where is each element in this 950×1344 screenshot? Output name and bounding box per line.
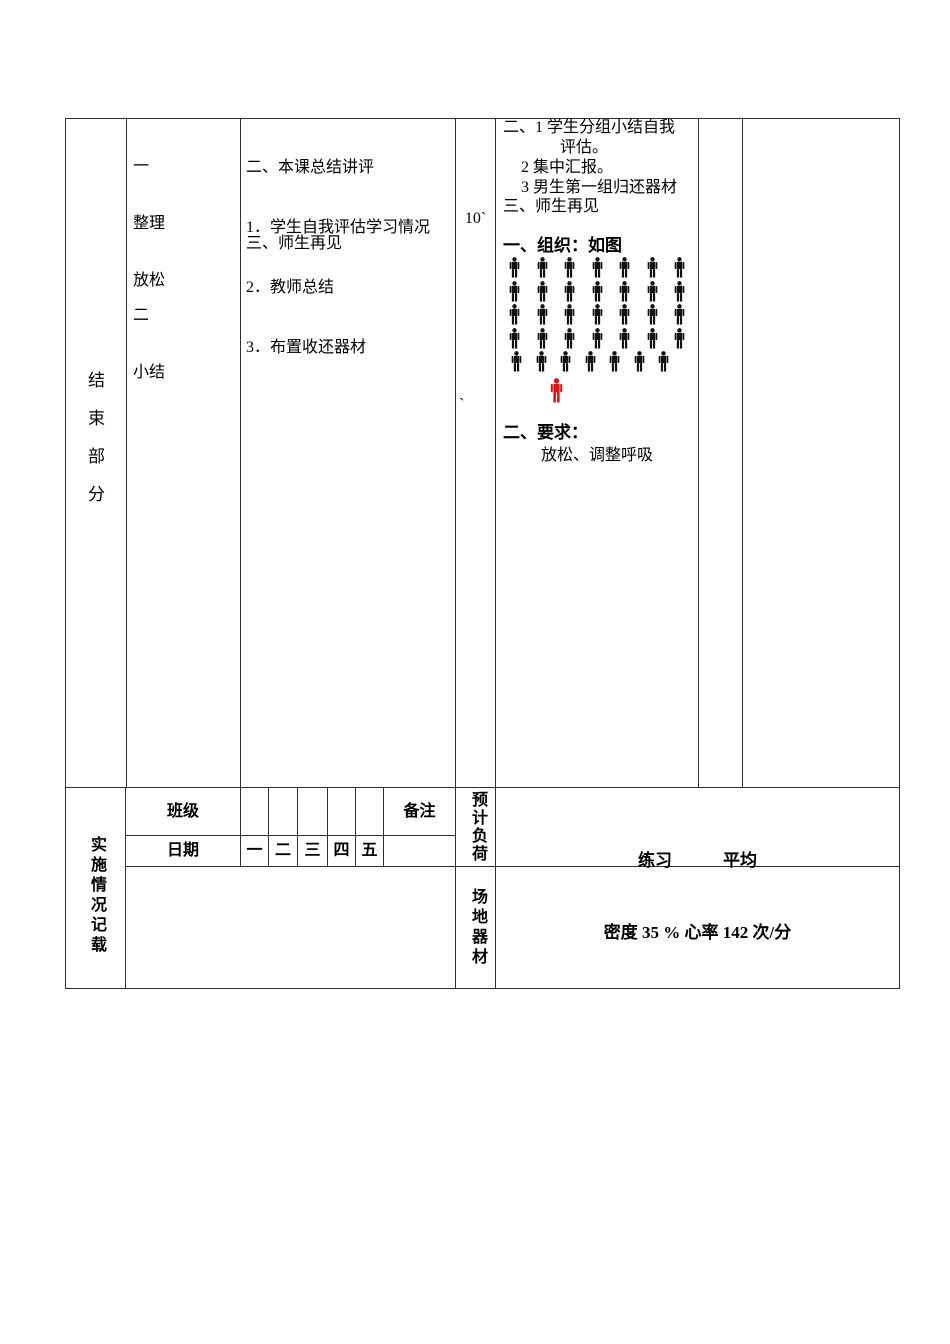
student-figure-icon — [509, 304, 520, 325]
weekday-label-mon: 一 — [240, 841, 269, 861]
student-figure-icon — [537, 281, 548, 302]
content-group1-num: 一 — [133, 157, 165, 176]
student-figure-icon — [509, 257, 520, 278]
student-figure-icon — [536, 351, 547, 372]
weekday-label-fri: 五 — [355, 841, 384, 861]
student-figure-icon — [674, 304, 685, 325]
student-figure-icon — [647, 281, 658, 302]
student-figure-icon — [647, 304, 658, 325]
teaching-line: 3．布置收还器材 — [246, 338, 430, 358]
teaching-dismissal-line: 三、师生再见 — [246, 234, 342, 254]
content-group2-line1: 小结 — [133, 363, 165, 382]
weekday-label-thu: 四 — [327, 841, 356, 861]
stray-tick-mark: ` — [459, 395, 464, 415]
student-figure-icon — [564, 304, 575, 325]
lesson-plan-page: 结束部分 一 整理 放松 二 小结 二、本课总结讲评 1．学生自我评估学习情况 … — [0, 0, 950, 1344]
student-figure-icon — [509, 281, 520, 302]
student-figure-icon — [609, 351, 620, 372]
student-figure-icon — [560, 351, 571, 372]
student-figure-icon — [511, 351, 522, 372]
student-figure-icon — [674, 257, 685, 278]
organization-heading: 一、组织：如图 — [503, 236, 622, 256]
student-figure-icon — [592, 304, 603, 325]
student-figure-icon — [592, 281, 603, 302]
class-blank-cell — [355, 787, 384, 836]
class-blank-cell — [240, 787, 269, 836]
load-label: 预计负荷 — [467, 791, 487, 863]
duration-value: 10` — [455, 209, 496, 229]
organization-line: 二、1 学生分组小结自我 — [503, 118, 675, 138]
organization-line: 2 集中汇报。 — [521, 158, 613, 178]
student-figure-icon — [619, 257, 630, 278]
class-blank-cell — [268, 787, 298, 836]
class-blank-cell — [297, 787, 328, 836]
student-figure-icon — [537, 257, 548, 278]
empty-col-2-cell — [742, 118, 900, 788]
student-figure-icon — [564, 281, 575, 302]
student-figure-icon — [619, 328, 630, 349]
remark-label: 备注 — [383, 802, 456, 822]
weekday-label-tue: 二 — [268, 841, 298, 861]
student-figure-icon — [592, 257, 603, 278]
student-figure-icon — [537, 304, 548, 325]
student-figure-icon — [585, 351, 596, 372]
student-figure-icon — [509, 328, 520, 349]
date-blank-cell — [383, 835, 456, 867]
teaching-line: 2．教师总结 — [246, 278, 430, 298]
record-section-label: 实施情况记载 — [86, 836, 106, 956]
content-group1-line1: 整理 — [133, 214, 165, 233]
class-label: 班级 — [125, 802, 241, 822]
student-figure-icon — [619, 281, 630, 302]
student-figure-icon — [674, 281, 685, 302]
student-figure-icon — [537, 328, 548, 349]
student-figure-icon — [658, 351, 669, 372]
class-blank-cell — [327, 787, 356, 836]
organization-line: 三、师生再见 — [503, 197, 599, 217]
requirements-heading: 二、要求： — [503, 423, 588, 443]
student-figure-icon — [564, 257, 575, 278]
student-figure-icon — [564, 328, 575, 349]
student-figure-icon — [592, 328, 603, 349]
organization-line: 3 男生第一组归还器材 — [521, 178, 677, 198]
weekday-label-wed: 三 — [297, 841, 328, 861]
student-figure-icon — [647, 257, 658, 278]
record-body-cell — [125, 866, 456, 989]
load-value-line1: 练习 平均 — [495, 849, 900, 873]
stage-label: 结束部分 — [84, 371, 104, 523]
requirements-text: 放松、调整呼吸 — [541, 446, 653, 466]
organization-line: 评估。 — [560, 138, 608, 158]
venue-label: 场地器材 — [467, 888, 487, 968]
student-figure-icon — [674, 328, 685, 349]
date-label: 日期 — [125, 841, 241, 861]
student-figure-icon — [634, 351, 645, 372]
teaching-line: 二、本课总结讲评 — [246, 158, 430, 178]
student-figure-icon — [619, 304, 630, 325]
empty-col-1-cell — [698, 118, 743, 788]
teacher-figure-icon — [550, 378, 563, 403]
load-value-line2: 密度 35 % 心率 142 次/分 — [495, 921, 900, 945]
content-group2-num: 二 — [133, 306, 165, 325]
student-figure-icon — [647, 328, 658, 349]
